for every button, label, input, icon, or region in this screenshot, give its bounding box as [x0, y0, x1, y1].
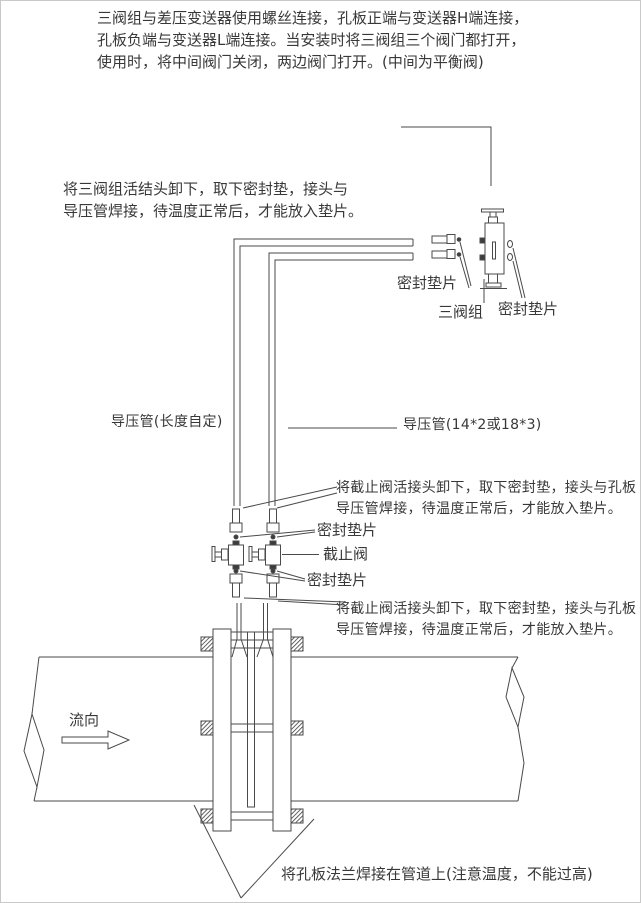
- bolt-head-icon: [291, 809, 303, 823]
- gasket-dot-icon: [457, 253, 461, 257]
- stop-valve-note-line: 导压管焊接，待温度正常后，才能放入垫片。: [336, 620, 636, 641]
- pipe-break-icon: [518, 727, 524, 801]
- top-instruction-text: 三阀组与差压变送器使用螺丝连接，孔板正端与变送器H端连接， 孔板负端与变送器L端…: [97, 7, 528, 73]
- bolt-head-icon: [291, 721, 303, 735]
- gasket-ring-icon: [508, 241, 513, 248]
- flange-plate: [273, 629, 291, 831]
- leader-lines: [194, 242, 525, 898]
- manifold-note-line: 将三阀组活结头卸下，取下密封垫，接头与: [63, 178, 363, 200]
- bolt-head-icon: [291, 637, 303, 651]
- three-valve-manifold-drawing: [480, 209, 513, 289]
- diagram-canvas: [1, 1, 641, 903]
- gasket-dot-icon: [234, 569, 238, 573]
- stop-valve-note-line: 导压管焊接，待温度正常后，才能放入垫片。: [336, 499, 636, 520]
- bolt-head-icon: [201, 721, 213, 735]
- label-seal-gasket-valve-lower: 密封垫片: [307, 573, 367, 588]
- pipe-break-icon: [512, 657, 518, 668]
- bolt-head-icon: [201, 637, 213, 651]
- bolt-head-icon: [201, 809, 213, 823]
- gasket-dot-icon: [457, 238, 461, 242]
- gasket-dot-icon: [234, 535, 238, 539]
- installation-diagram-page: 三阀组与差压变送器使用螺丝连接，孔板正端与变送器H端连接， 孔板负端与变送器L端…: [0, 0, 641, 903]
- top-instruction-line: 使用时，将中间阀门关闭，两边阀门打开。(中间为平衡阀): [97, 51, 528, 73]
- pipe-break-icon: [34, 787, 37, 801]
- flow-arrow-icon: [62, 731, 129, 749]
- transmitter-connection-line: [401, 127, 491, 186]
- label-seal-gasket-manifold-left: 密封垫片: [397, 276, 457, 291]
- manifold-note-line: 导压管焊接，待温度正常后，才能放入垫片。: [63, 200, 363, 222]
- gasket-ring-icon: [508, 254, 513, 261]
- pipe-break-icon: [506, 668, 524, 727]
- union-fittings-drawing: [432, 235, 461, 259]
- stop-valve-note-upper: 将截止阀活接头卸下，取下密封垫，接头与孔板 导压管焊接，待温度正常后，才能放入垫…: [336, 478, 636, 520]
- label-stop-valve: 截止阀: [323, 547, 368, 562]
- stop-valve-note-line: 将截止阀活接头卸下，取下密封垫，接头与孔板: [336, 599, 636, 620]
- label-flow-direction: 流向: [69, 713, 99, 728]
- label-impulse-pipe-right: 导压管(14*2或18*3): [403, 418, 542, 432]
- stop-valve-note-line: 将截止阀活接头卸下，取下密封垫，接头与孔板: [336, 478, 636, 499]
- pipe-break-icon: [24, 714, 44, 787]
- stop-valve-note-lower: 将截止阀活接头卸下，取下密封垫，接头与孔板 导压管焊接，待温度正常后，才能放入垫…: [336, 599, 636, 641]
- label-seal-gasket-valve-upper: 密封垫片: [317, 523, 377, 538]
- orifice-flange-drawing: [201, 629, 303, 831]
- stop-valves-drawing: [212, 509, 281, 597]
- gasket-dot-icon: [271, 569, 275, 573]
- impulse-pipes-drawing: [234, 239, 413, 506]
- flange-plate: [213, 629, 231, 831]
- flange-note-text: 将孔板法兰焊接在管道上(注意温度，不能过高): [281, 867, 593, 882]
- top-instruction-line: 孔板负端与变送器L端连接。当安装时将三阀组三个阀门都打开，: [97, 29, 528, 51]
- label-impulse-pipe-left: 导压管(长度自定): [111, 415, 223, 429]
- label-seal-gasket-manifold-right: 密封垫片: [498, 302, 558, 317]
- manifold-note-text: 将三阀组活结头卸下，取下密封垫，接头与 导压管焊接，待温度正常后，才能放入垫片。: [63, 178, 363, 222]
- pipe-break-icon: [32, 657, 39, 714]
- gasket-dot-icon: [271, 535, 275, 539]
- top-instruction-line: 三阀组与差压变送器使用螺丝连接，孔板正端与变送器H端连接，: [97, 7, 528, 29]
- label-three-valve-manifold: 三阀组: [438, 305, 483, 320]
